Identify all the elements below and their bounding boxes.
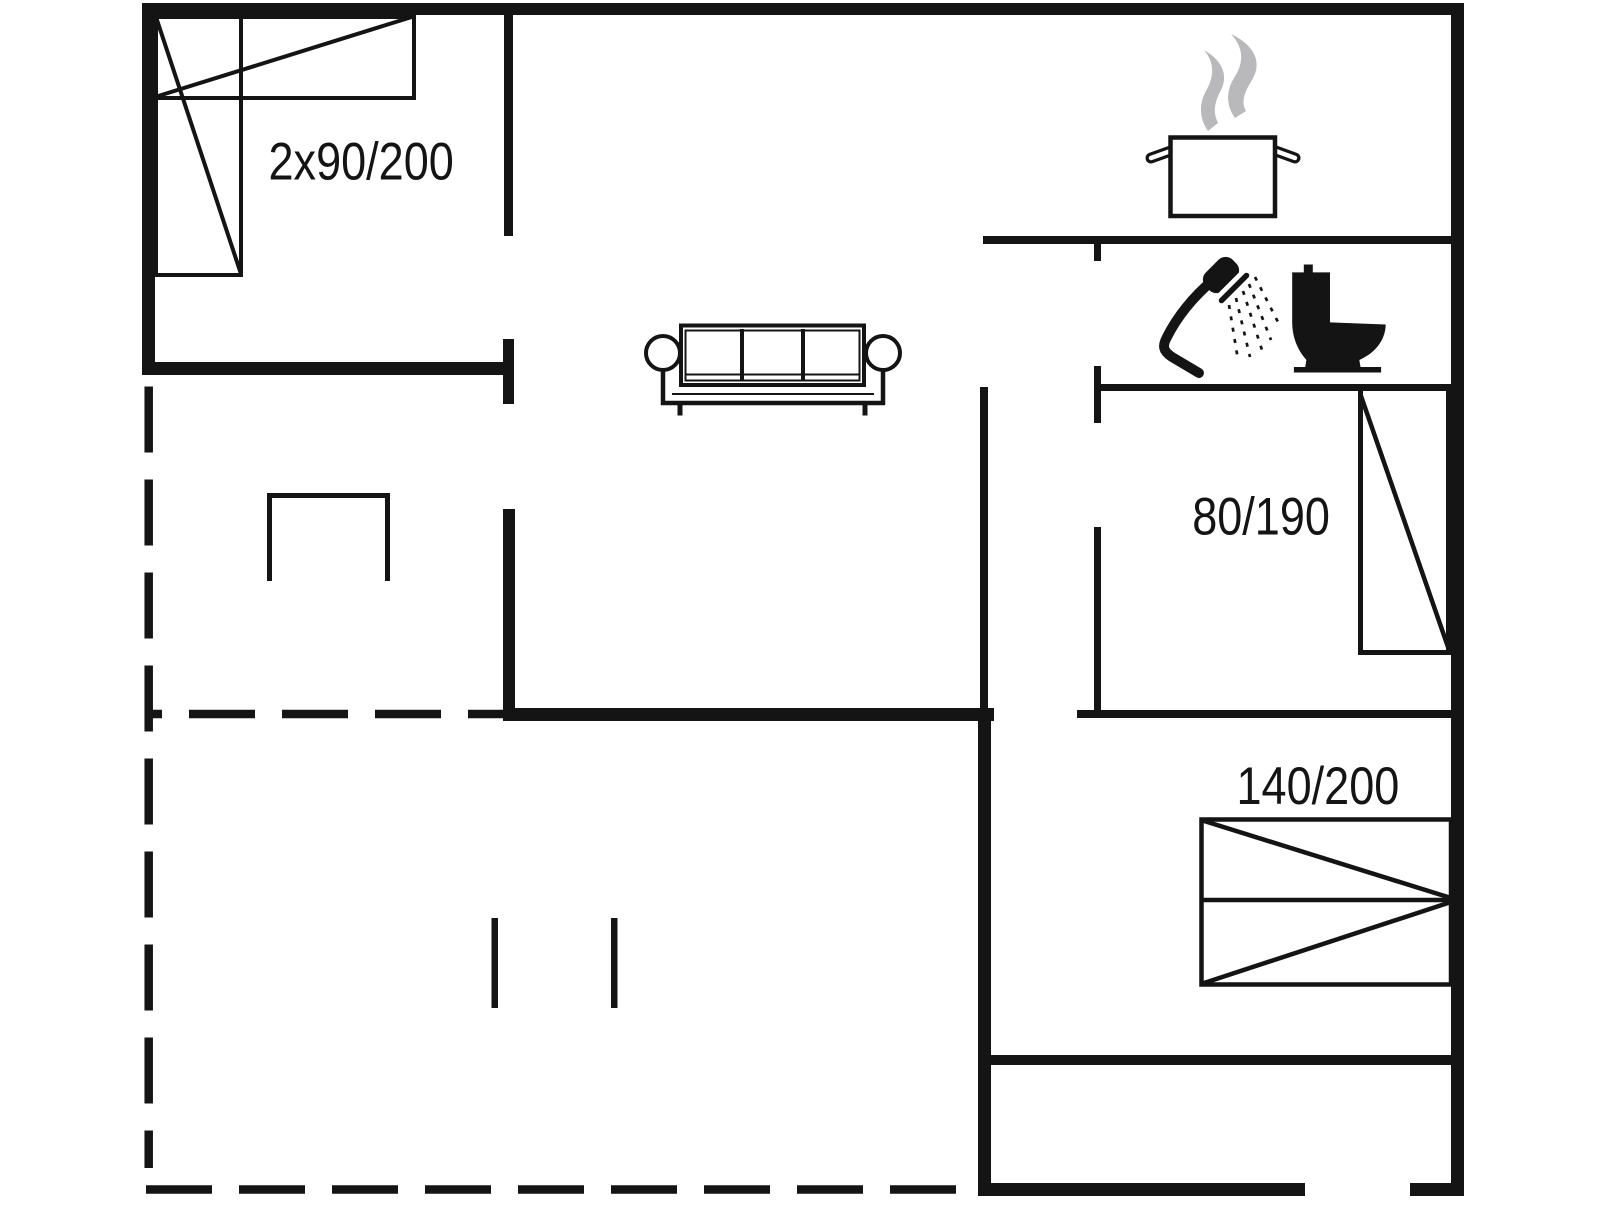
svg-text:140/200: 140/200	[1237, 757, 1400, 816]
svg-text:2x90/200: 2x90/200	[269, 132, 454, 191]
svg-text:80/190: 80/190	[1192, 487, 1330, 546]
